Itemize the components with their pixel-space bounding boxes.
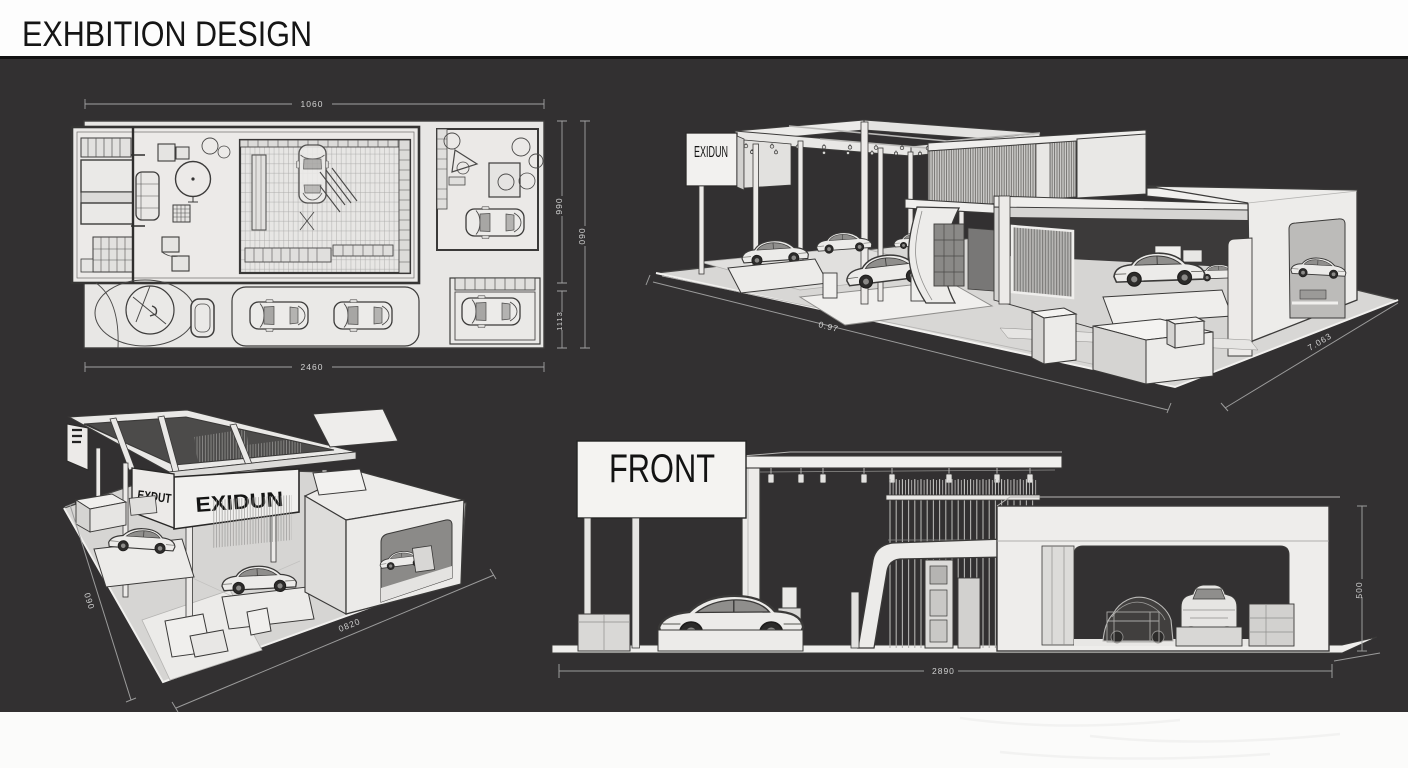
svg-text:EXIDUN: EXIDUN: [694, 144, 728, 161]
svg-text:500: 500: [1354, 581, 1364, 598]
svg-text:990: 990: [554, 197, 564, 214]
svg-text:FRONT: FRONT: [609, 447, 715, 491]
svg-text:EXHBITION DESIGN: EXHBITION DESIGN: [22, 14, 312, 54]
svg-text:090: 090: [577, 227, 587, 244]
svg-text:2460: 2460: [301, 362, 324, 372]
svg-text:0.97: 0.97: [818, 319, 840, 334]
svg-text:2890: 2890: [932, 666, 955, 676]
svg-text:090: 090: [82, 592, 97, 611]
svg-text:1060: 1060: [301, 99, 324, 109]
svg-text:1113: 1113: [555, 311, 564, 331]
